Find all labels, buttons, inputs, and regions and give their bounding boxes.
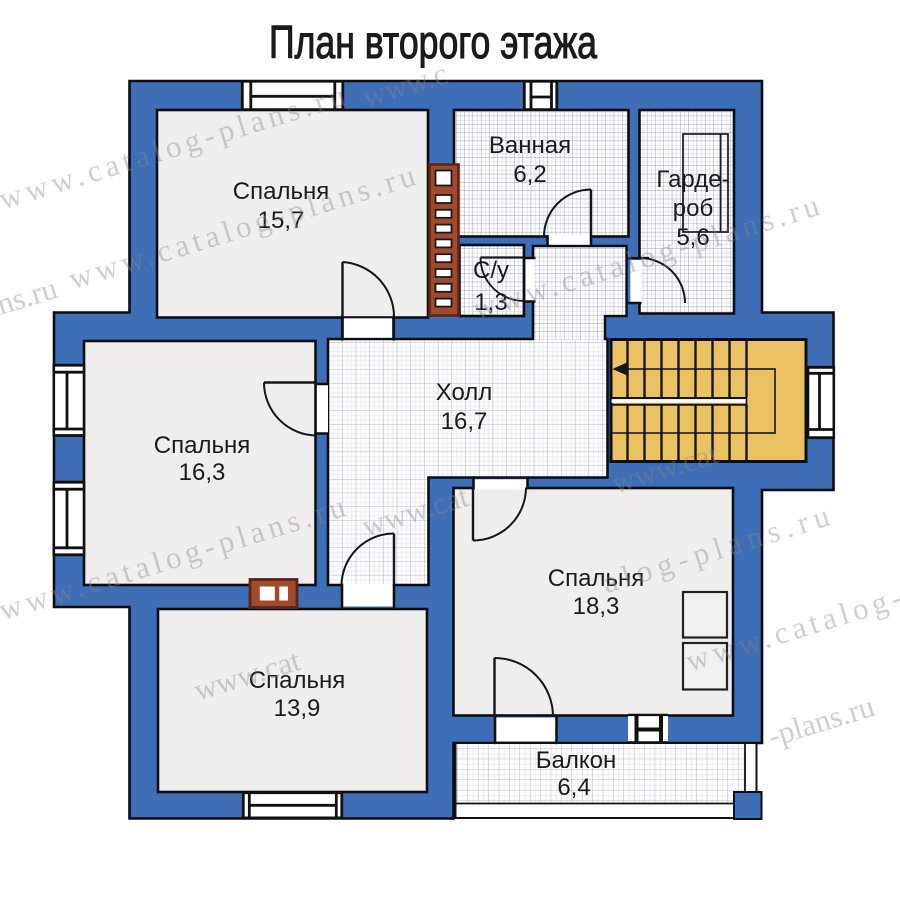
svg-text:13,9: 13,9: [274, 695, 321, 722]
svg-text:Холл: Холл: [436, 379, 493, 406]
svg-text:Ванная: Ванная: [489, 132, 571, 159]
svg-text:С/у: С/у: [473, 257, 509, 284]
svg-text:6,4: 6,4: [557, 774, 590, 801]
svg-text:16,7: 16,7: [441, 408, 488, 435]
svg-text:Спальня: Спальня: [233, 178, 329, 205]
svg-text:-plans.ru: -plans.ru: [764, 688, 879, 753]
svg-text:6,2: 6,2: [513, 161, 546, 188]
svg-text:Гарде-: Гарде-: [656, 166, 729, 193]
svg-text:Спальня: Спальня: [154, 432, 250, 459]
svg-text:ns.ru: ns.ru: [0, 270, 61, 321]
svg-text:Балкон: Балкон: [536, 747, 616, 774]
svg-text:роб: роб: [673, 195, 713, 222]
svg-text:16,3: 16,3: [179, 459, 226, 486]
